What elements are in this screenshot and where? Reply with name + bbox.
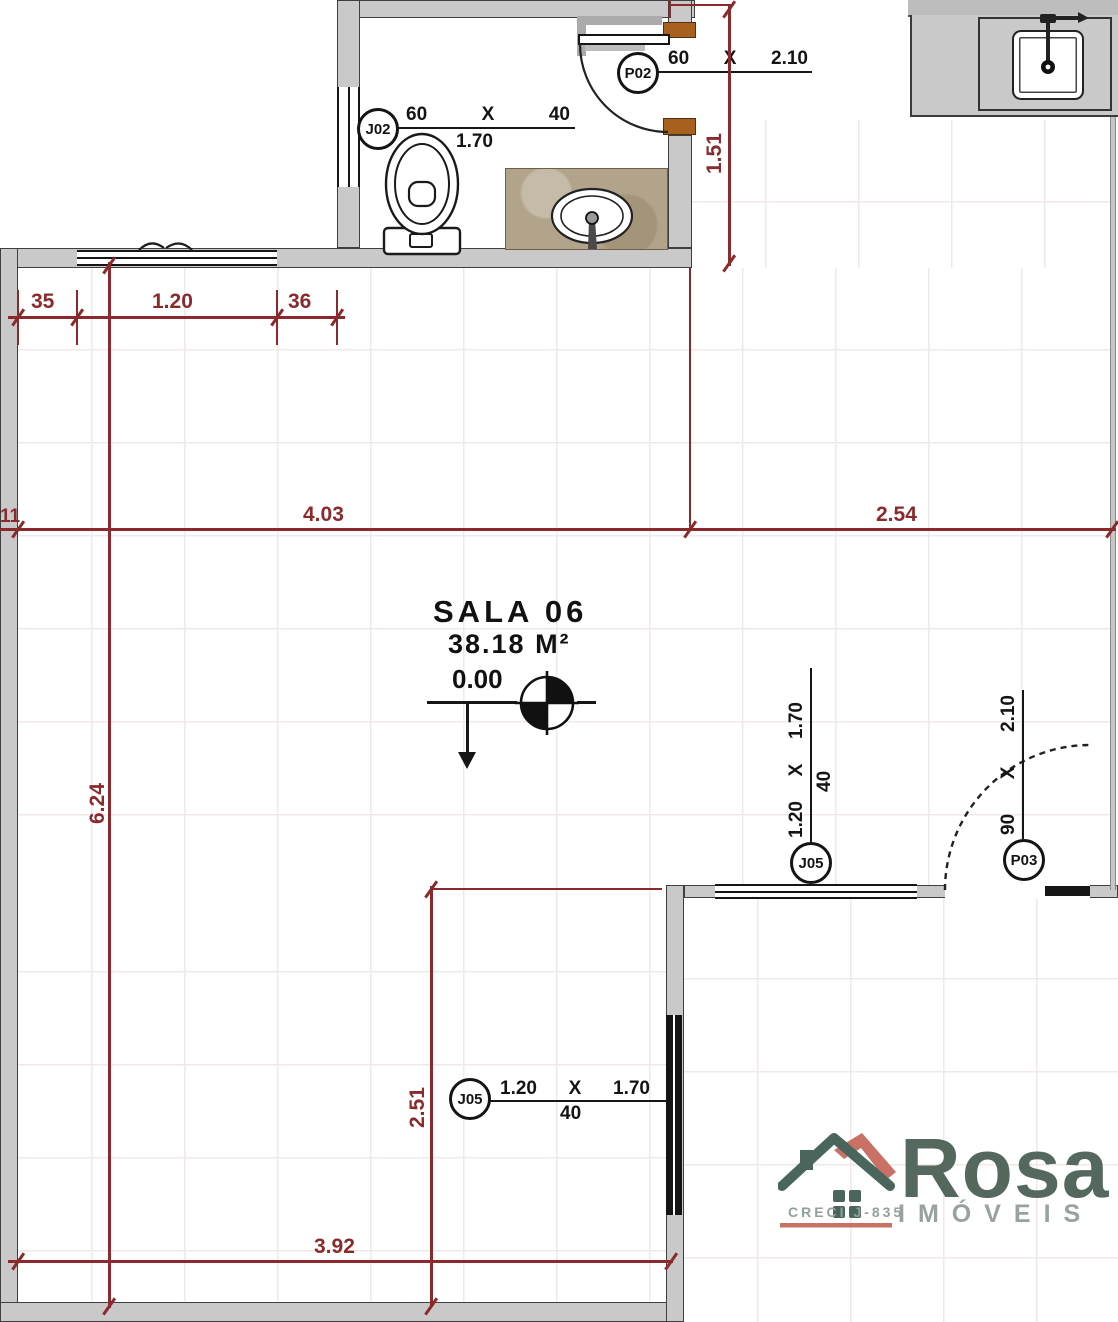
j02-sill: 1.70 [456,131,493,153]
j05-top-width: 1.20 [786,801,808,838]
tag-code-p02: P02 [625,65,652,82]
window-j02 [337,87,360,187]
floor-grid-upper-right [692,120,1110,268]
tag-code-j05-bottom: J05 [457,1091,482,1108]
dim-624: 6.24 [86,783,110,824]
tag-circle-j05-top: J05 [790,842,832,884]
p03-height: 2.10 [998,695,1020,732]
dim-chain-line [8,316,345,319]
logo-subtitle: IMÓVEIS [898,1200,1093,1229]
room-name: SALA 06 [433,594,587,630]
tag-leader-j05-top [810,668,812,842]
tag-leader-p02 [657,71,812,73]
dim-36: 36 [288,290,311,314]
level-line [427,701,517,704]
dim-403-ext [689,268,691,530]
dim-151: 1.51 [703,133,727,174]
towel-rack-bar-top [577,16,662,25]
j05-bottom-sep: X [569,1078,582,1100]
room-level: 0.00 [452,664,503,695]
tag-code-j05-top: J05 [798,855,823,872]
dim-403-line [0,528,1116,531]
logo-creci: CRECI J-835 [788,1204,904,1220]
wall-left [0,248,18,1322]
j05-top-sill: 40 [814,771,836,792]
dim-35: 35 [31,290,54,314]
j05-bottom-sill: 40 [560,1103,581,1125]
j05-top-sep: X [786,764,808,777]
dim-403: 4.03 [303,503,344,527]
p03-sep: X [998,767,1020,780]
j02-height: 40 [549,104,570,126]
dim-151-line [728,6,731,266]
dim-120: 1.20 [152,290,193,314]
window-swing-marks [136,237,196,253]
bathroom-sink-icon [545,183,640,253]
wall-bathroom-right-lower [668,135,692,248]
dim-251-line [430,886,433,1307]
dim-151-ext-corner [669,0,671,18]
kitchen-faucet-icon [1026,10,1090,74]
tag-spec-j05-top: 1.20 X 1.70 [786,702,808,838]
tag-spec-p03: 90 X 2.10 [998,695,1020,835]
p03-width: 90 [998,814,1020,835]
level-drop-arrow-icon [458,752,476,769]
j05-bottom-height: 1.70 [613,1078,650,1100]
tag-leader-p03 [1022,690,1024,839]
level-drop-line [466,702,469,754]
dim-392-line [8,1260,673,1263]
p02-width: 60 [668,48,689,70]
dim-251-ext [432,888,662,890]
tag-leader-j02 [398,127,575,129]
tag-circle-p03: P03 [1003,839,1045,881]
floor-grid-lower-right [684,897,1118,1322]
tag-code-p03: P03 [1011,852,1038,869]
wall-right-thin [1110,115,1116,890]
j02-width: 60 [406,104,427,126]
toilet-icon [378,132,466,256]
tag-spec-j05-bottom: 1.20 X 1.70 [500,1078,650,1100]
dim-151-ext-top [670,4,732,6]
dim-edge-partial: 11 [0,506,20,528]
level-line-right-stub [577,701,596,704]
dim-254: 2.54 [876,503,917,527]
j05-top-height: 1.70 [786,702,808,739]
tag-circle-p02: P02 [617,52,659,94]
p02-height: 2.10 [771,48,808,70]
dim-392: 3.92 [314,1235,355,1259]
level-marker-icon [515,671,579,735]
window-j05-horizontal [715,884,917,899]
tag-spec-j02: 60 X 40 [406,104,570,126]
tag-spec-p02: 60 X 2.10 [668,48,808,70]
room-area: 38.18 M² [448,629,571,660]
tag-circle-j02: J02 [357,108,399,150]
floor-plan: J02 60 X 40 1.70 P02 60 X 2.10 J05 1.20 … [0,0,1118,1322]
j02-sep: X [482,104,495,126]
logo-house-icon [778,1126,898,1238]
tag-code-j02: J02 [365,121,390,138]
dim-251: 2.51 [406,1087,430,1128]
window-j05-vertical [666,1015,682,1215]
tag-circle-j05-bottom: J05 [449,1078,491,1120]
j05-bottom-width: 1.20 [500,1078,537,1100]
